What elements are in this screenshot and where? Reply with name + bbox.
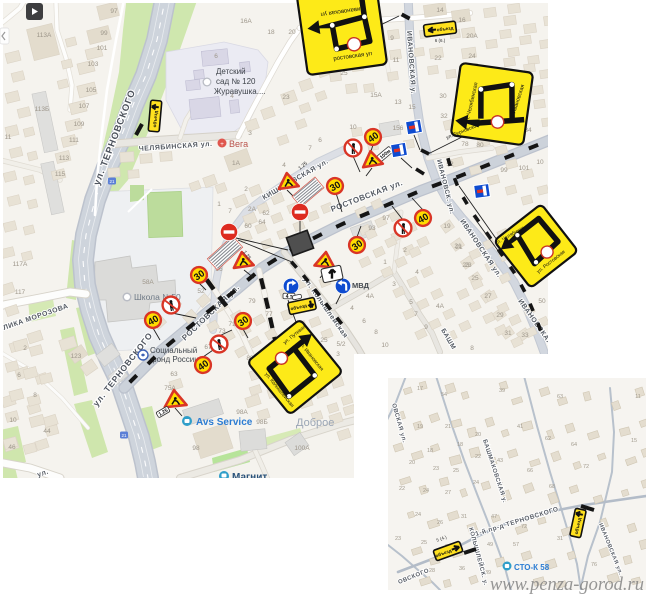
svg-text:3: 3: [336, 351, 340, 358]
svg-text:31: 31: [557, 536, 563, 542]
svg-text:14: 14: [436, 7, 444, 14]
svg-text:99: 99: [100, 30, 108, 37]
svg-text:77: 77: [265, 311, 273, 318]
svg-text:105: 105: [86, 87, 97, 94]
svg-text:72: 72: [583, 464, 589, 470]
svg-text:27: 27: [445, 490, 451, 496]
svg-text:156: 156: [393, 125, 404, 132]
svg-text:20: 20: [475, 432, 481, 438]
svg-text:103: 103: [88, 61, 99, 68]
svg-text:33: 33: [521, 332, 529, 339]
svg-text:9: 9: [424, 324, 428, 331]
svg-text:78: 78: [461, 141, 469, 148]
svg-text:58А: 58А: [142, 279, 154, 286]
svg-text:63: 63: [557, 394, 563, 400]
svg-text:79: 79: [248, 298, 256, 305]
svg-text:101: 101: [97, 45, 108, 52]
svg-text:54: 54: [441, 392, 447, 398]
svg-text:98: 98: [192, 445, 200, 452]
svg-text:2: 2: [403, 247, 407, 254]
svg-text:6 (6.): 6 (6.): [435, 38, 446, 43]
svg-text:4А: 4А: [366, 293, 375, 300]
svg-text:117А: 117А: [13, 261, 28, 268]
svg-text:52: 52: [197, 288, 205, 295]
svg-text:24: 24: [415, 512, 421, 518]
svg-text:43: 43: [497, 458, 503, 464]
svg-text:62: 62: [545, 436, 551, 442]
svg-text:26: 26: [437, 520, 443, 526]
svg-text:93: 93: [368, 225, 376, 232]
svg-text:15: 15: [631, 438, 637, 444]
svg-text:23: 23: [395, 536, 401, 542]
svg-text:64: 64: [258, 219, 266, 226]
svg-text:СТО-К 58: СТО-К 58: [514, 563, 550, 572]
svg-text:41: 41: [517, 424, 523, 430]
svg-text:19: 19: [417, 424, 423, 430]
svg-text:23: 23: [462, 262, 470, 269]
svg-text:6: 6: [362, 318, 366, 325]
svg-text:76: 76: [591, 562, 597, 568]
svg-text:8: 8: [33, 392, 37, 399]
svg-text:11: 11: [5, 134, 12, 141]
svg-text:113: 113: [59, 155, 70, 162]
svg-text:5/2: 5/2: [336, 341, 345, 348]
svg-text:25: 25: [320, 337, 328, 344]
svg-text:21: 21: [109, 179, 115, 184]
svg-text:20: 20: [288, 29, 296, 36]
svg-text:8: 8: [470, 345, 474, 352]
svg-text:4 т: 4 т: [286, 294, 293, 300]
svg-text:113Б: 113Б: [35, 106, 50, 113]
svg-text:22: 22: [475, 454, 481, 460]
svg-text:3: 3: [248, 130, 252, 137]
svg-text:22: 22: [399, 486, 405, 492]
svg-text:25: 25: [471, 275, 479, 282]
svg-text:25: 25: [453, 468, 459, 474]
svg-text:21: 21: [121, 433, 127, 438]
svg-text:8: 8: [374, 329, 378, 336]
svg-text:22: 22: [434, 55, 442, 62]
svg-text:сад № 120: сад № 120: [216, 77, 256, 86]
svg-text:4: 4: [350, 305, 354, 312]
svg-text:44: 44: [43, 428, 51, 435]
svg-text:7: 7: [228, 208, 232, 215]
svg-text:10: 10: [536, 159, 544, 166]
svg-text:50: 50: [538, 298, 546, 305]
svg-text:23: 23: [282, 94, 290, 101]
svg-text:18: 18: [267, 29, 275, 36]
svg-text:19: 19: [443, 223, 451, 230]
svg-text:Доброе: Доброе: [296, 417, 334, 429]
svg-text:18: 18: [457, 442, 463, 448]
svg-text:20: 20: [409, 460, 415, 466]
svg-text:Детский: Детский: [216, 67, 246, 76]
svg-text:Вега: Вега: [229, 139, 248, 149]
svg-text:97: 97: [382, 215, 390, 222]
svg-text:4А: 4А: [436, 303, 445, 310]
svg-text:23: 23: [433, 466, 439, 472]
svg-text:5: 5: [409, 299, 413, 306]
svg-text:97: 97: [110, 8, 118, 15]
svg-text:64: 64: [571, 442, 577, 448]
svg-text:6: 6: [17, 372, 21, 379]
svg-text:Социальный: Социальный: [150, 346, 197, 355]
svg-text:1А: 1А: [232, 160, 241, 167]
svg-text:10: 10: [381, 342, 389, 349]
svg-text:2А: 2А: [248, 206, 257, 213]
svg-text:7: 7: [414, 311, 418, 318]
svg-text:2: 2: [244, 186, 248, 193]
svg-text:1: 1: [383, 259, 387, 266]
svg-text:24: 24: [423, 488, 429, 494]
svg-text:18: 18: [427, 448, 433, 454]
svg-text:11: 11: [393, 57, 400, 64]
svg-text:31: 31: [461, 514, 467, 520]
svg-text:2: 2: [23, 345, 27, 352]
svg-text:73: 73: [218, 328, 226, 335]
svg-text:47: 47: [491, 514, 497, 520]
svg-text:МВД: МВД: [352, 281, 370, 290]
svg-text:57: 57: [513, 542, 519, 548]
svg-text:6: 6: [318, 137, 322, 144]
svg-text:39: 39: [499, 388, 505, 394]
svg-text:6: 6: [214, 53, 218, 60]
svg-text:www.penza-gorod.ru: www.penza-gorod.ru: [490, 575, 644, 595]
svg-text:25: 25: [421, 540, 427, 546]
svg-text:32: 32: [440, 113, 448, 120]
svg-text:3: 3: [392, 281, 396, 288]
svg-text:46: 46: [8, 444, 16, 451]
svg-text:117: 117: [15, 289, 26, 296]
svg-text:9: 9: [390, 35, 394, 42]
svg-text:98А: 98А: [236, 409, 248, 416]
svg-text:49: 49: [487, 542, 493, 548]
svg-text:123: 123: [71, 353, 82, 360]
svg-text:60: 60: [244, 223, 252, 230]
svg-text:20А: 20А: [466, 33, 478, 40]
svg-text:31: 31: [504, 330, 512, 337]
svg-text:17: 17: [417, 386, 423, 392]
svg-text:16: 16: [458, 17, 466, 24]
svg-text:+: +: [220, 141, 224, 148]
svg-text:10: 10: [349, 124, 357, 131]
svg-text:15: 15: [408, 104, 416, 111]
svg-text:21: 21: [445, 424, 451, 430]
svg-text:80: 80: [476, 142, 484, 149]
svg-text:66: 66: [527, 468, 533, 474]
svg-text:Журавушка....: Журавушка....: [214, 87, 266, 96]
svg-text:113А: 113А: [37, 32, 52, 39]
svg-text:68: 68: [549, 484, 555, 490]
svg-text:фонд России: фонд России: [150, 355, 199, 364]
svg-text:111: 111: [69, 137, 79, 144]
svg-text:7: 7: [308, 145, 312, 152]
svg-text:98Б: 98Б: [256, 419, 268, 426]
svg-text:24: 24: [473, 480, 479, 486]
svg-text:15А: 15А: [370, 92, 382, 99]
svg-text:100А: 100А: [294, 445, 310, 452]
svg-text:107: 107: [79, 103, 90, 110]
svg-text:72: 72: [521, 524, 527, 530]
svg-text:109: 109: [74, 121, 85, 128]
svg-text:27: 27: [484, 293, 492, 300]
svg-text:63: 63: [170, 371, 178, 378]
svg-text:30: 30: [439, 93, 447, 100]
svg-text:11: 11: [635, 394, 641, 400]
svg-text:62: 62: [262, 210, 270, 217]
svg-text:13: 13: [394, 99, 402, 106]
svg-text:21: 21: [455, 244, 463, 251]
svg-text:36: 36: [459, 566, 465, 572]
svg-text:29: 29: [496, 312, 504, 319]
svg-text:4: 4: [415, 269, 419, 276]
svg-text:115: 115: [55, 171, 66, 178]
svg-text:Avs Service: Avs Service: [196, 417, 253, 428]
svg-text:99: 99: [500, 167, 508, 174]
svg-text:4: 4: [282, 162, 286, 169]
svg-text:10: 10: [9, 417, 17, 424]
svg-text:1: 1: [217, 201, 221, 208]
svg-text:101: 101: [519, 165, 530, 172]
svg-text:16А: 16А: [240, 18, 252, 25]
svg-text:24: 24: [468, 53, 476, 60]
